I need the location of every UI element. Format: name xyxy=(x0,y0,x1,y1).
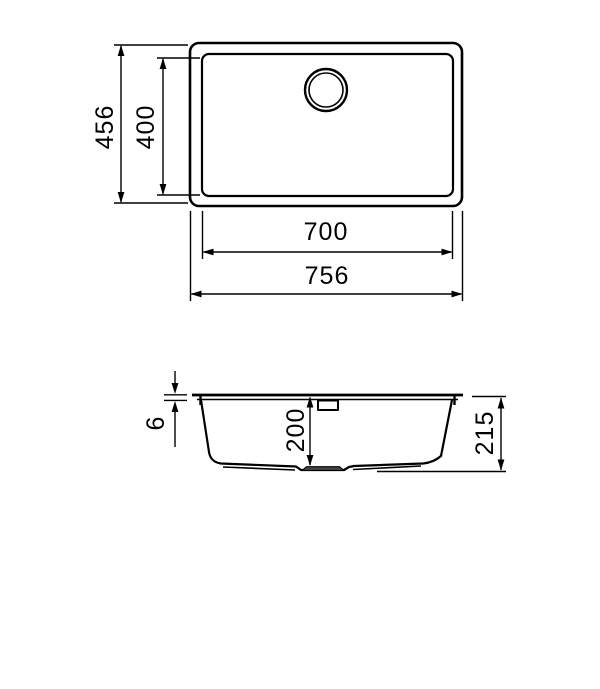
drawing-canvas: 456 400 700 756 xyxy=(0,0,600,689)
arrowhead-up xyxy=(307,397,314,408)
arrowhead-left xyxy=(191,291,202,298)
dimension-215: 215 xyxy=(377,397,506,472)
dimension-200: 200 xyxy=(282,397,314,467)
top-view-bowl-outline xyxy=(202,54,453,196)
arrowhead-down xyxy=(498,460,505,471)
dimension-label-215: 215 xyxy=(471,411,499,456)
top-view-outer-rim-outline xyxy=(190,43,462,206)
arrowhead-up xyxy=(172,401,179,412)
arrowhead-up xyxy=(160,58,167,69)
dimension-label-700: 700 xyxy=(304,218,349,246)
drain-inner-circle xyxy=(309,73,343,107)
dimension-label-6: 6 xyxy=(142,416,170,431)
dimension-label-756: 756 xyxy=(305,262,350,290)
arrowhead-right xyxy=(442,249,453,256)
arrowhead-up xyxy=(118,45,125,56)
section-view: 6 200 215 xyxy=(142,371,506,472)
arrowhead-left xyxy=(203,249,214,256)
arrowhead-up xyxy=(498,398,505,409)
dimension-6: 6 xyxy=(142,371,187,447)
bowl-bottom-outer-line-left xyxy=(223,467,295,470)
dimension-label-456: 456 xyxy=(91,105,119,150)
top-view: 456 400 700 756 xyxy=(91,43,463,301)
overflow-opening xyxy=(318,401,338,411)
dimension-label-200: 200 xyxy=(282,408,310,453)
dimension-label-400: 400 xyxy=(132,105,160,150)
arrowhead-right xyxy=(452,291,463,298)
arrowhead-down xyxy=(160,184,167,195)
drain-outer-circle xyxy=(305,69,347,111)
arrowhead-down xyxy=(172,383,179,394)
arrowhead-down xyxy=(118,192,125,203)
arrowhead-down xyxy=(307,455,314,466)
drain-gasket-bar xyxy=(302,467,344,471)
sink-dimension-drawing: 456 400 700 756 xyxy=(0,0,600,689)
dimension-700: 700 xyxy=(203,211,453,259)
